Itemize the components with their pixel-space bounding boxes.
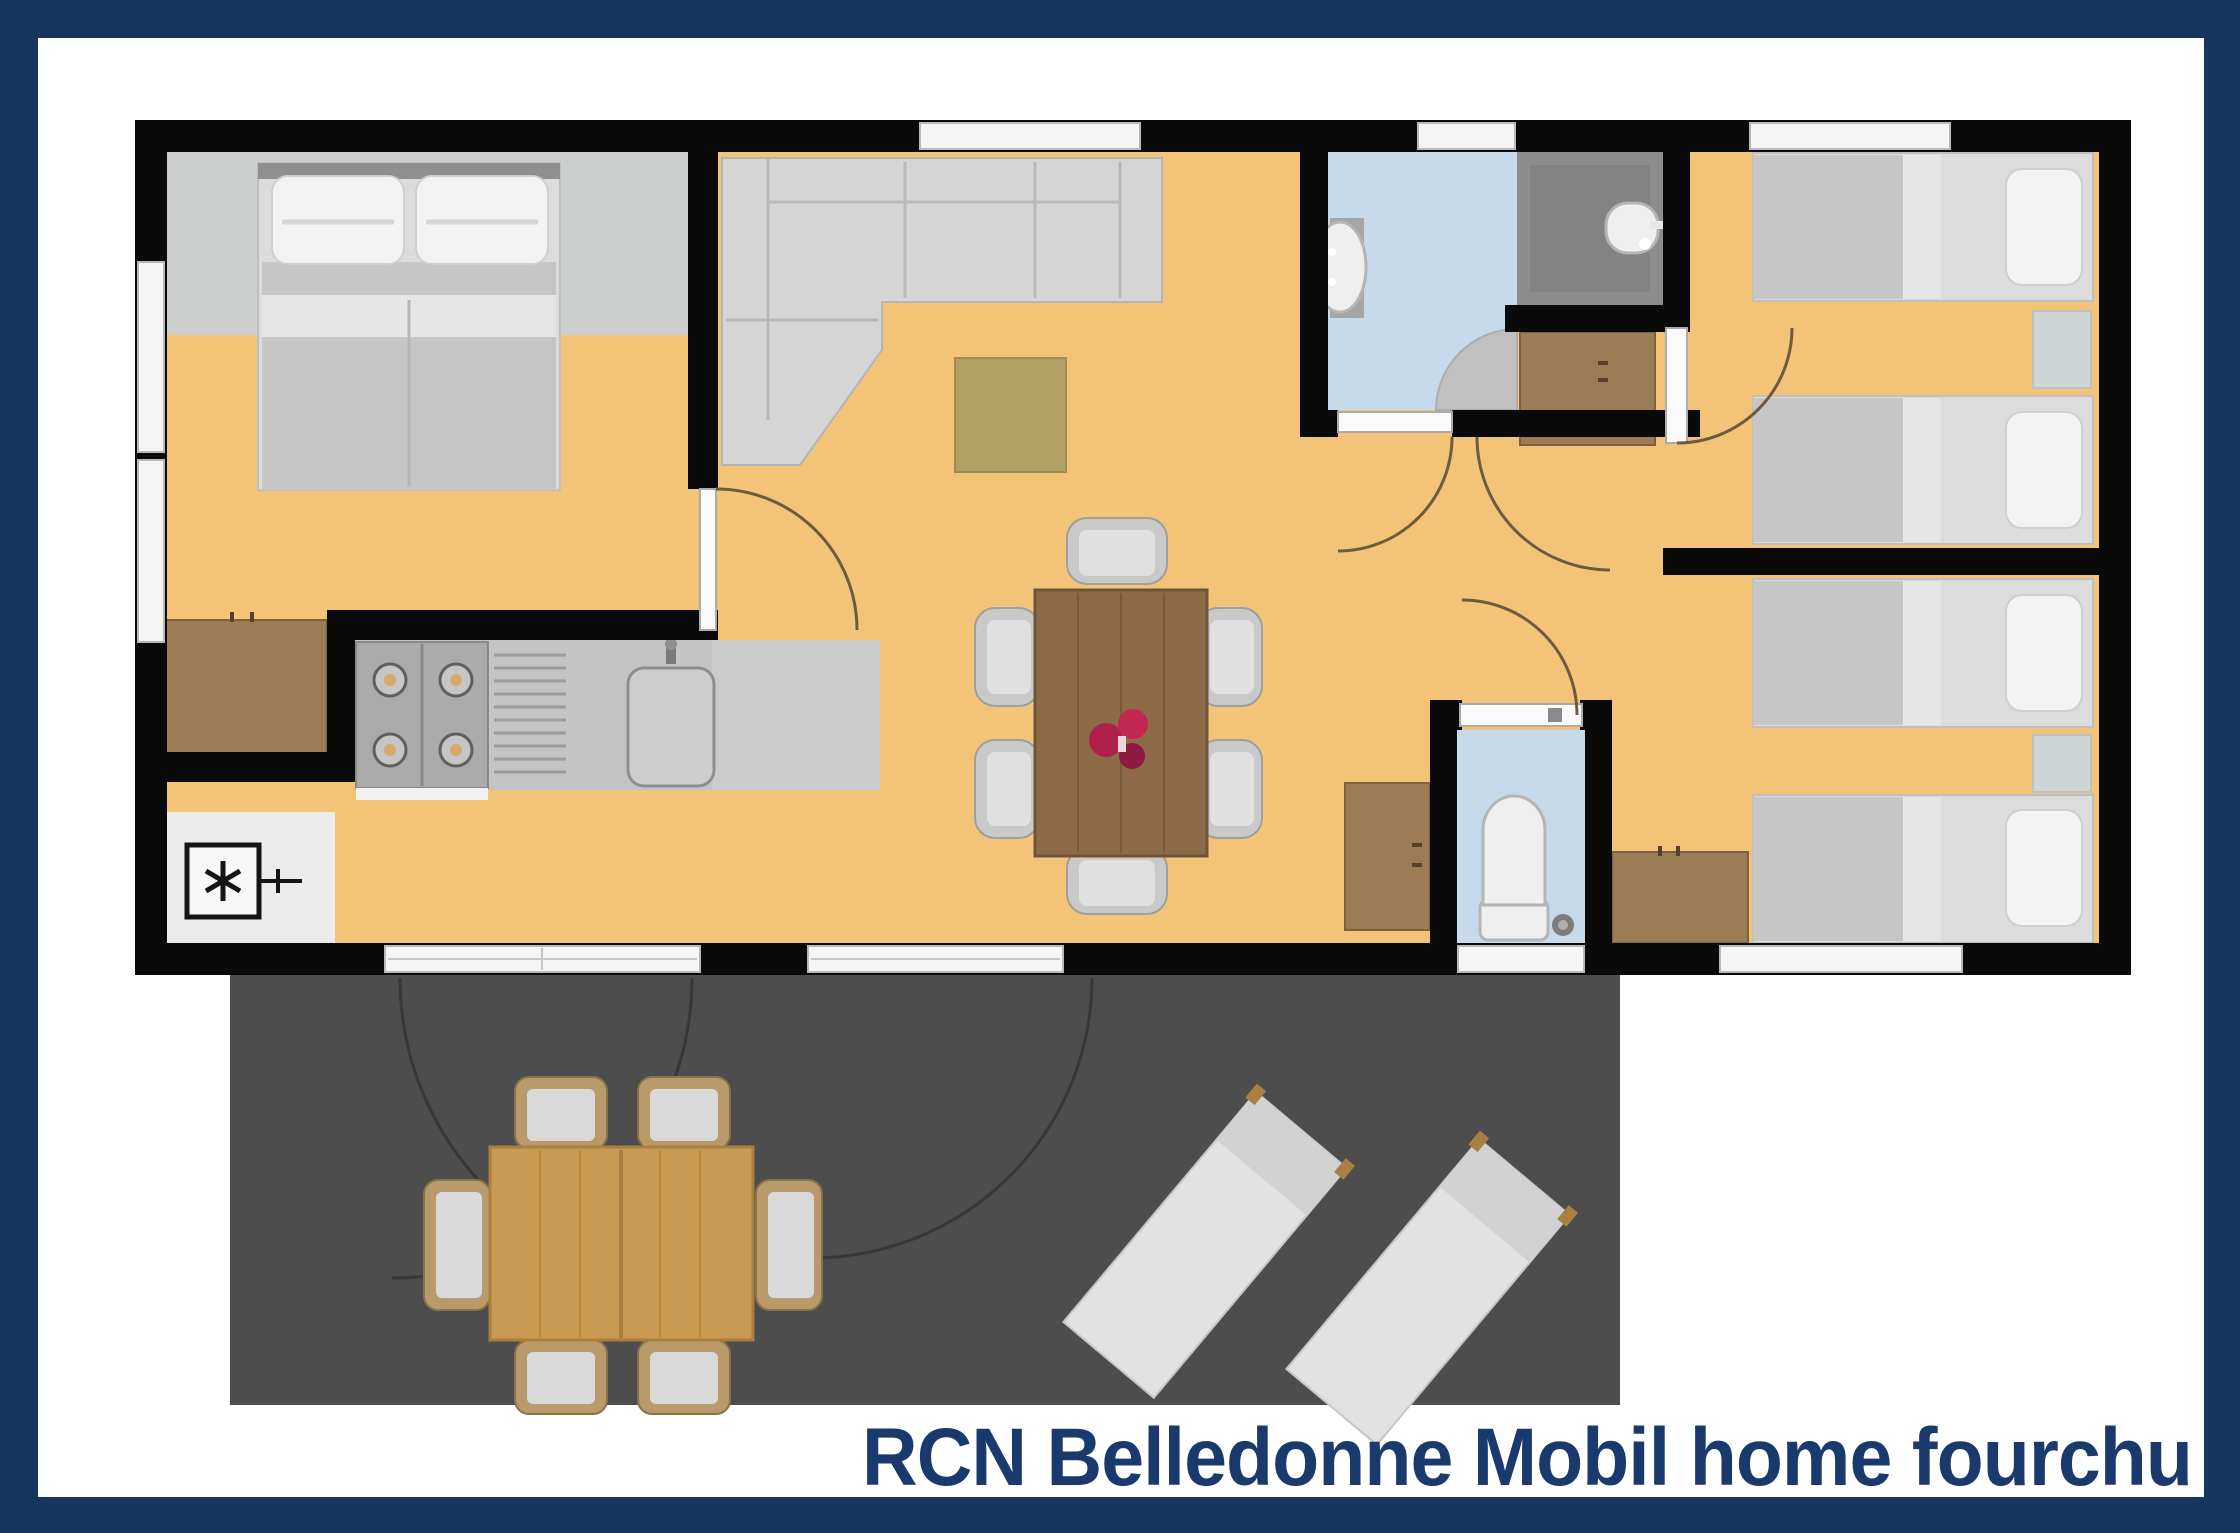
nightstand <box>2033 311 2091 388</box>
wall-basin-knob <box>1639 238 1651 250</box>
chair-seat <box>1079 530 1155 576</box>
outdoor-chair <box>638 1340 730 1414</box>
window-icon <box>1750 123 1950 149</box>
outdoor-chair <box>424 1180 490 1310</box>
wall-kitchen-back <box>327 610 718 640</box>
hall-cabinet-body <box>1345 783 1430 930</box>
window-icon <box>1458 946 1584 972</box>
washbasin-tap <box>1328 278 1336 286</box>
wall-basin-tap <box>1650 221 1664 229</box>
stove-front-sill <box>356 788 488 800</box>
caption-tspan: RCN Belledonne Mobil home fourchu <box>862 1412 2192 1503</box>
wall-toilet-top <box>1430 700 1462 730</box>
wardrobe-body <box>1612 852 1748 943</box>
outdoor-chair <box>515 1077 607 1149</box>
wardrobe <box>165 612 327 762</box>
wall-bathroom-left <box>1300 120 1328 437</box>
bed-duvet <box>1753 155 1903 299</box>
outdoor-chair-seat <box>436 1192 482 1298</box>
door-handle <box>1548 708 1562 722</box>
kitchen-counter-end <box>712 640 880 790</box>
dining-chair <box>1067 518 1167 584</box>
window-icon <box>1418 123 1515 149</box>
pillow <box>2006 595 2082 711</box>
terrace <box>230 975 1620 1448</box>
rug <box>955 358 1066 472</box>
single-bed <box>1753 579 2093 727</box>
outdoor-chair-seat <box>768 1192 814 1298</box>
wall-bathroom-bottom <box>1452 410 1700 437</box>
outdoor-chair-seat <box>527 1352 595 1404</box>
toilet-bowl <box>1483 796 1545 905</box>
wall-shower-bottom <box>1505 305 1690 332</box>
bed-duvet <box>1753 581 1903 725</box>
wardrobe-body <box>165 620 327 762</box>
outdoor-chair <box>756 1180 822 1310</box>
wall-right <box>2099 120 2131 975</box>
dining-chair <box>1067 848 1167 914</box>
wall-shower-right <box>1663 120 1690 332</box>
frame-border-right <box>2204 0 2240 1533</box>
bed-sheet-fold <box>1903 797 1941 941</box>
wall-nook-bottom <box>138 752 355 782</box>
chair-seat <box>1079 860 1155 906</box>
door-leaf <box>1460 704 1582 726</box>
door-leaf <box>1338 412 1452 432</box>
dining-chair <box>975 608 1039 706</box>
nightstand <box>2033 735 2091 792</box>
window-icon <box>138 262 164 452</box>
floor-plan-image: RCN Belledonne Mobil home fourchu <box>0 0 2240 1533</box>
wall-bedroom-living <box>688 120 718 489</box>
pillow <box>2006 810 2082 926</box>
window-icon <box>1720 946 1962 972</box>
dining-chair <box>975 740 1039 838</box>
door-leaf <box>1666 328 1687 443</box>
outdoor-chair-seat <box>650 1352 718 1404</box>
toilet-flush-button-inner <box>1558 920 1568 930</box>
wall-toilet-right <box>1585 700 1612 975</box>
chair-seat <box>1210 620 1254 694</box>
door-leaf <box>700 489 716 630</box>
wall-toilet-top <box>1580 700 1612 730</box>
frame-border-top <box>0 0 2240 38</box>
hall-cabinet <box>1345 783 1430 930</box>
stove-4-burners <box>356 642 488 800</box>
wardrobe <box>1612 846 1748 943</box>
outdoor-chair-seat <box>527 1089 595 1141</box>
pillow <box>2006 169 2082 285</box>
single-bed <box>1753 795 2093 943</box>
chair-seat <box>987 752 1031 826</box>
sink-basin <box>628 668 714 786</box>
sliding-door-icon <box>385 946 700 972</box>
bed-sheet-fold <box>1903 581 1941 725</box>
wall-bedrooms-divider <box>1663 548 2131 575</box>
pillow <box>2006 412 2082 528</box>
window-icon <box>920 123 1140 149</box>
chair-seat <box>987 620 1031 694</box>
wall-bathroom-bottom <box>1300 410 1338 437</box>
bed-duvet <box>1753 398 1903 542</box>
sliding-door-icon <box>808 946 1063 972</box>
window-icon <box>138 460 164 642</box>
wall-toilet-left <box>1430 700 1457 975</box>
bed-duvet <box>1753 797 1903 941</box>
bed-sheet-fold <box>1903 155 1941 299</box>
outdoor-chair <box>638 1077 730 1149</box>
single-bed <box>1753 396 2093 544</box>
chair-seat <box>1210 752 1254 826</box>
bed-sheet-fold <box>1903 398 1941 542</box>
outdoor-chair <box>515 1340 607 1414</box>
caption-text: RCN Belledonne Mobil home fourchu <box>862 1412 2192 1503</box>
outdoor-chair-seat <box>650 1089 718 1141</box>
frame-border-left <box>0 0 38 1533</box>
single-bed <box>1753 153 2093 301</box>
floor-plan-page: RCN Belledonne Mobil home fourchu <box>0 0 2240 1533</box>
washbasin-tap <box>1328 248 1336 256</box>
